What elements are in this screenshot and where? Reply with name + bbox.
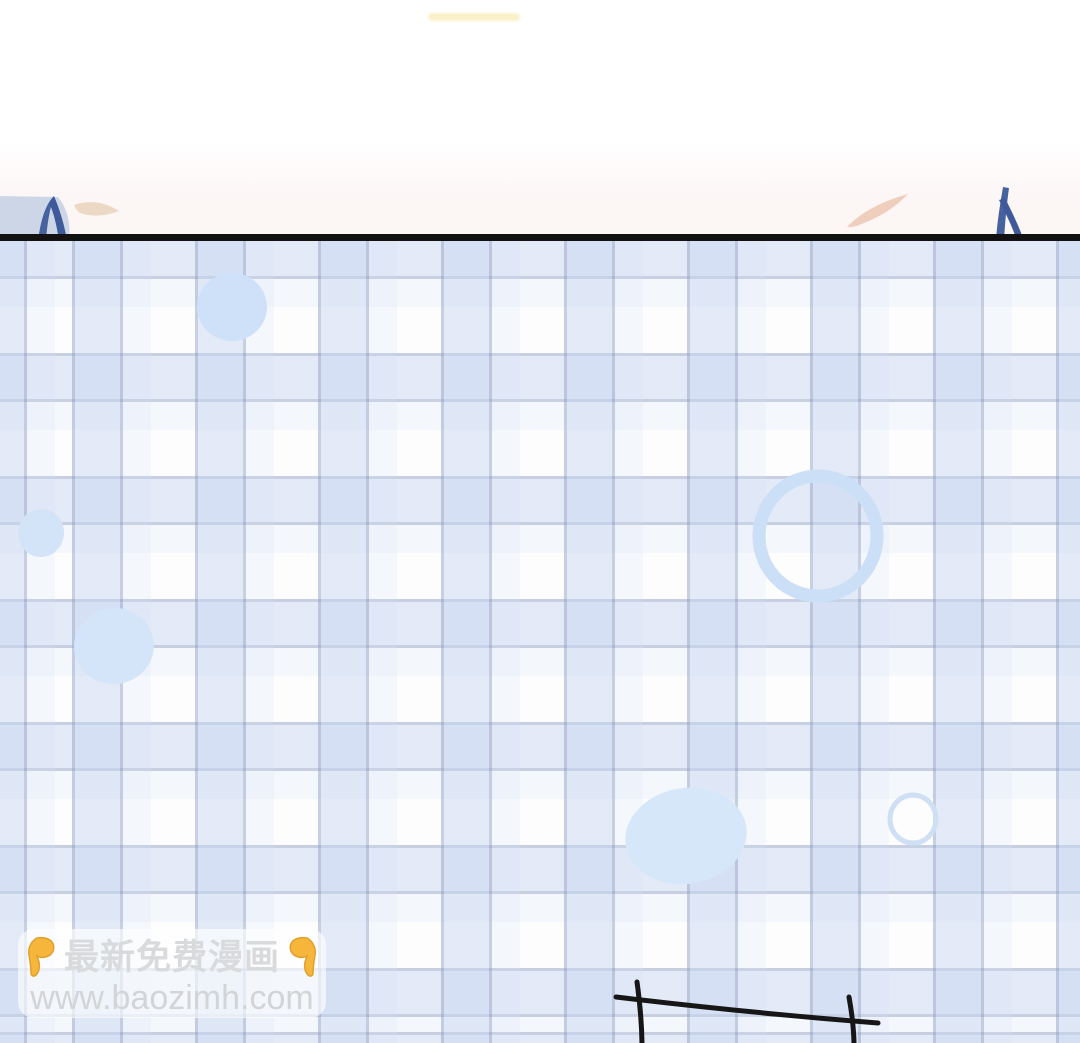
watermark-title: 最新免费漫画: [64, 940, 280, 975]
site-watermark: 最新免费漫画 www.baozimh.com: [18, 929, 326, 1018]
character-hair-decor: [0, 0, 1080, 241]
panel-separator-line: [0, 234, 1080, 241]
watermark-title-row: 最新免费漫画: [23, 934, 321, 980]
watermark-url: www.baozimh.com: [30, 981, 313, 1015]
pointing-down-hand-icon: [23, 936, 59, 978]
plaid-background: [0, 241, 1080, 1043]
hair-tip-beige: [74, 202, 119, 215]
hair-tip-peach: [847, 194, 908, 227]
previous-panel-bottom: [0, 0, 1080, 241]
comic-page: 最新免费漫画 www.baozimh.com: [0, 0, 1080, 1043]
pointing-down-hand-icon: [285, 936, 321, 978]
